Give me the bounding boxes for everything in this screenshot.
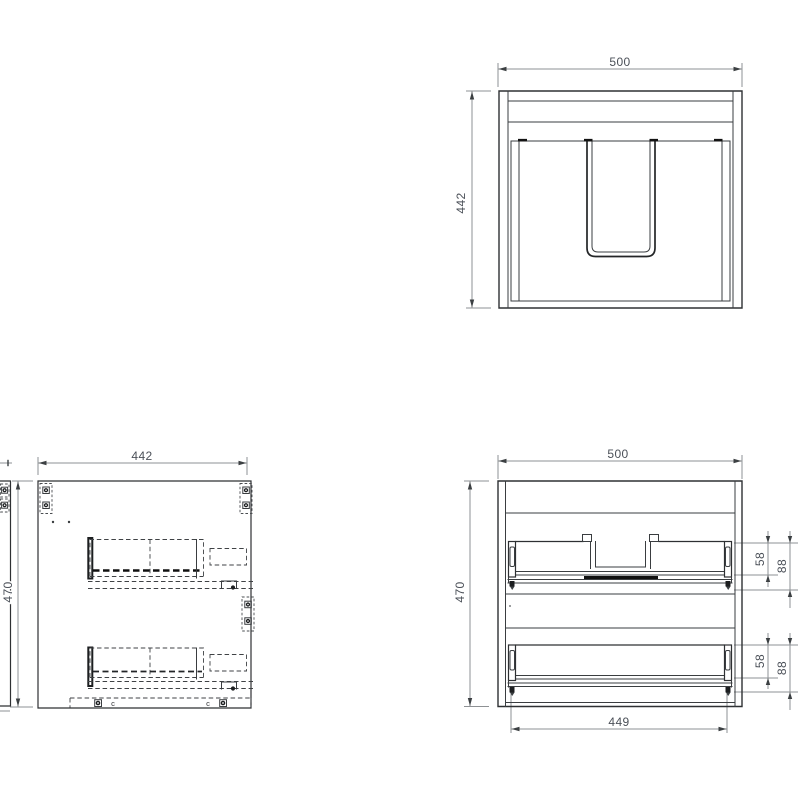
front-view-cabinet-outline — [498, 481, 742, 707]
top-view-depth-label: 442 — [454, 192, 468, 213]
top-view-dim-depth: 442 — [454, 91, 491, 308]
top-view-dim-width: 500 — [498, 55, 742, 87]
siphon-cutout — [583, 535, 659, 572]
side-view-dim-depth: 442 — [38, 449, 247, 475]
front-view-inner-width-label: 449 — [608, 715, 629, 729]
side-view-cabinet-outline — [38, 481, 251, 708]
drawer-slide-bracket-right — [725, 645, 732, 696]
cam-fitting-icon — [43, 487, 50, 509]
fitting-mark-right: c — [206, 699, 210, 708]
front-view-dim-inner-width: 449 — [511, 693, 727, 733]
front-view-height-label: 470 — [453, 581, 467, 602]
front-view: 500 470 449 58 88 58 88 — [453, 447, 798, 733]
cabinet-technical-drawing: 500 442 — [0, 0, 800, 800]
side-view-dim-height: 470 — [1, 481, 33, 707]
side-view-corner-fittings — [40, 484, 254, 632]
side-view-height-label: 470 — [1, 581, 15, 602]
drawer-slide-bracket-right — [725, 542, 732, 591]
side-view: 442 470 — [0, 449, 254, 711]
front-view-dim-width: 500 — [498, 447, 742, 479]
lower-drawer-box — [508, 645, 732, 696]
upper-drawer-total-height-label: 88 — [775, 559, 789, 573]
cam-fitting-icon — [243, 487, 250, 509]
dowel-dot — [68, 521, 70, 523]
bottom-fixing-strip: c c — [70, 698, 251, 708]
dowel-dot — [52, 521, 54, 523]
top-view: 500 442 — [454, 55, 742, 308]
top-view-cabinet-outline — [499, 91, 742, 308]
cam-fitting-icon — [220, 700, 227, 707]
cam-fitting-icon — [2, 487, 8, 508]
cam-fitting-icon — [95, 700, 102, 707]
front-view-width-label: 500 — [607, 447, 628, 461]
drawer-slide-bracket-left — [509, 542, 516, 591]
lower-drawer-dims: 58 88 — [734, 633, 798, 710]
lower-drawer-slide-hidden — [88, 648, 253, 691]
lower-drawer-front-height-label: 58 — [753, 654, 767, 668]
fitting-mark-left: c — [111, 699, 115, 708]
technical-drawing-page: 500 442 — [0, 0, 800, 800]
dowel-dot — [509, 605, 511, 607]
top-view-width-label: 500 — [609, 55, 630, 69]
drawer-slide-bracket-left — [509, 645, 516, 696]
upper-drawer-box — [508, 535, 732, 591]
cam-fitting-icon — [245, 601, 252, 624]
front-view-dim-height: 470 — [453, 481, 489, 707]
sink-drain-cutout — [587, 141, 655, 257]
lower-drawer-total-height-label: 88 — [775, 661, 789, 675]
upper-drawer-dims: 58 88 — [734, 531, 798, 608]
side-view-depth-label: 442 — [131, 449, 152, 463]
upper-drawer-slide-hidden — [88, 538, 253, 590]
slide-latch-icon — [222, 682, 237, 691]
upper-drawer-front-height-label: 58 — [753, 552, 767, 566]
